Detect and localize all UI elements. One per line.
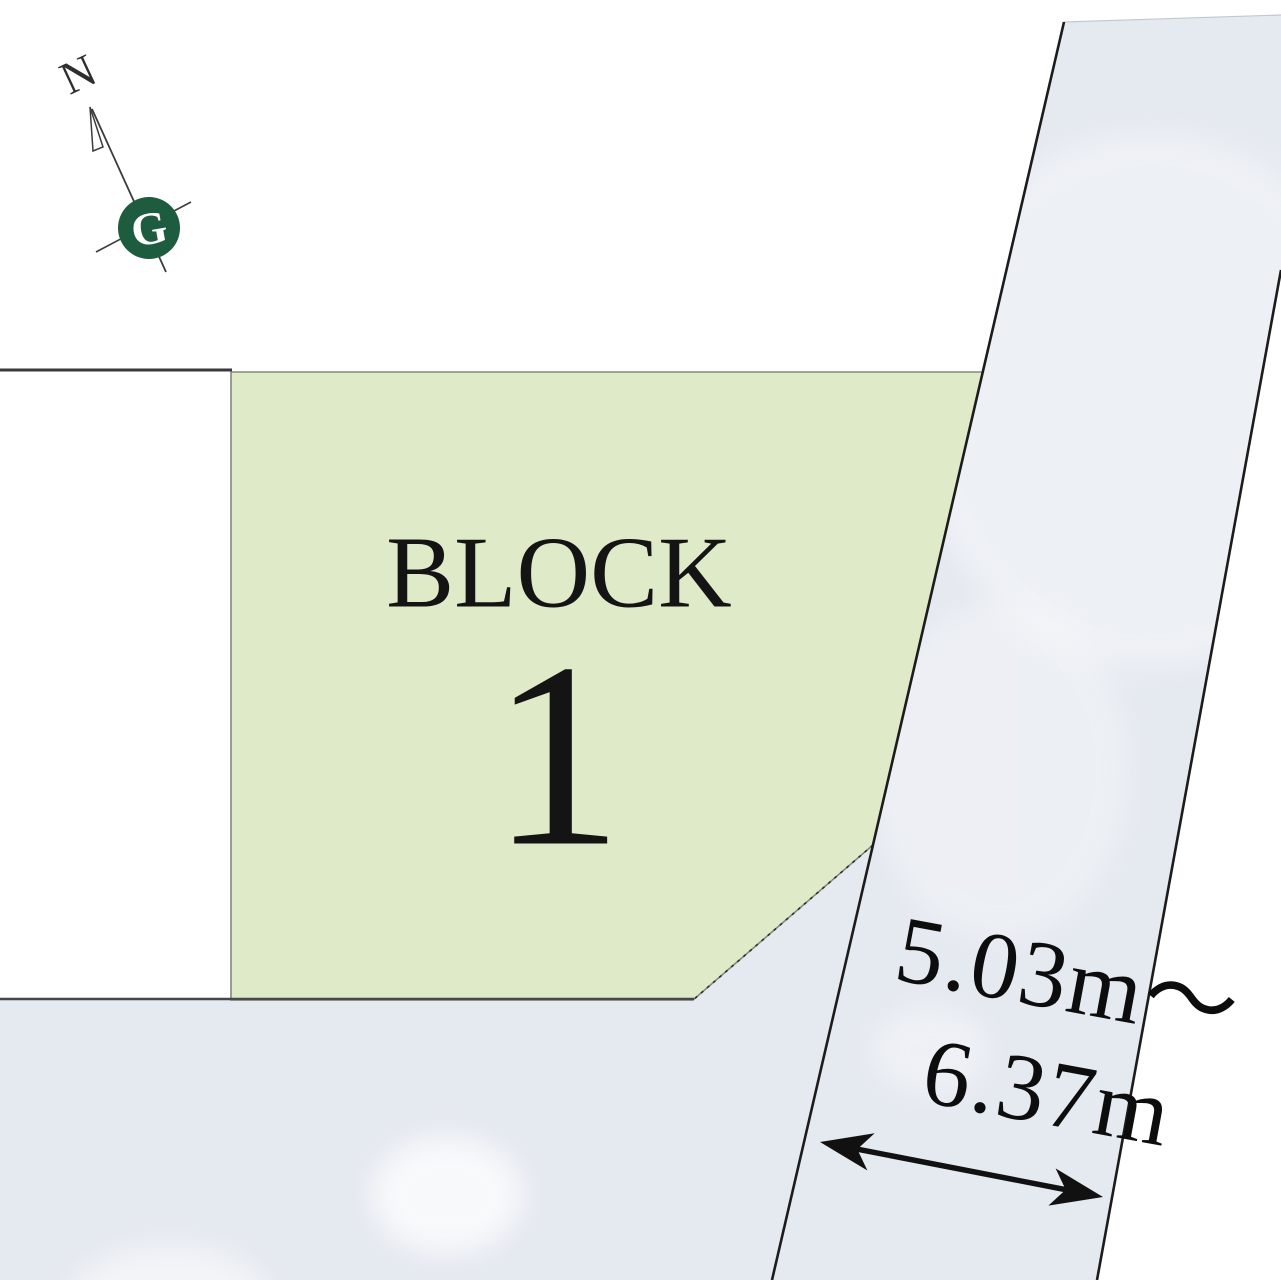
road-highlight-blob [372,1137,522,1253]
plot-plan-canvas: G N BLOCK 1 5.03m～ 6.37m [0,0,1281,1280]
block-number-label: 1 [491,605,623,908]
